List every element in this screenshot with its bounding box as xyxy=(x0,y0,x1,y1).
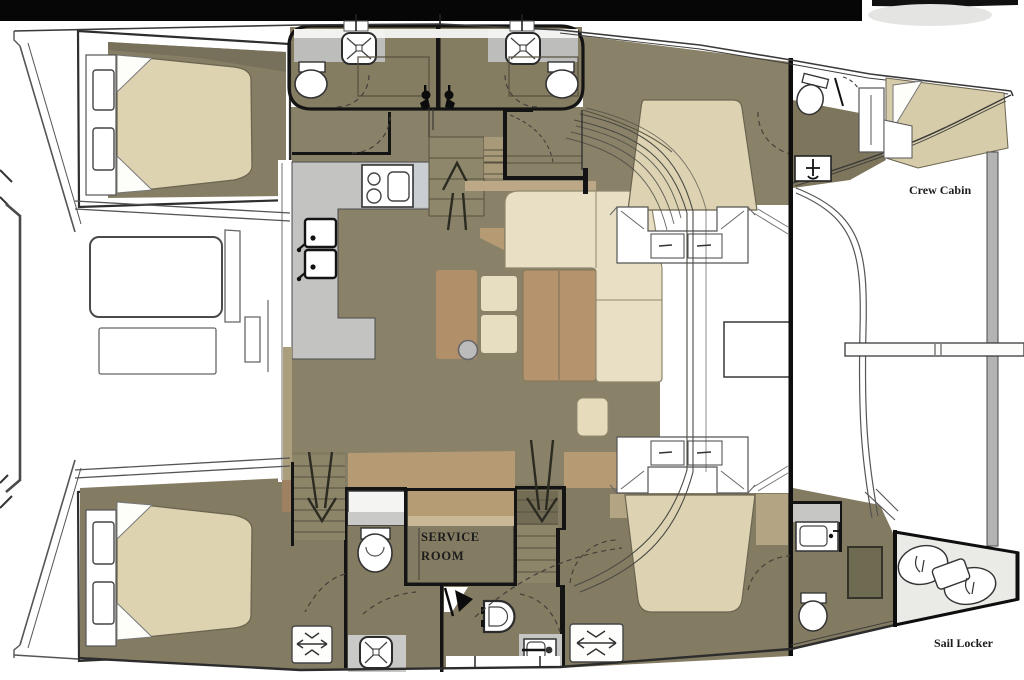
svg-text:SERVICE: SERVICE xyxy=(421,530,480,544)
svg-text:Crew Cabin: Crew Cabin xyxy=(909,183,971,197)
svg-text:Sail Locker: Sail Locker xyxy=(934,636,994,650)
svg-text:ROOM: ROOM xyxy=(421,549,464,563)
